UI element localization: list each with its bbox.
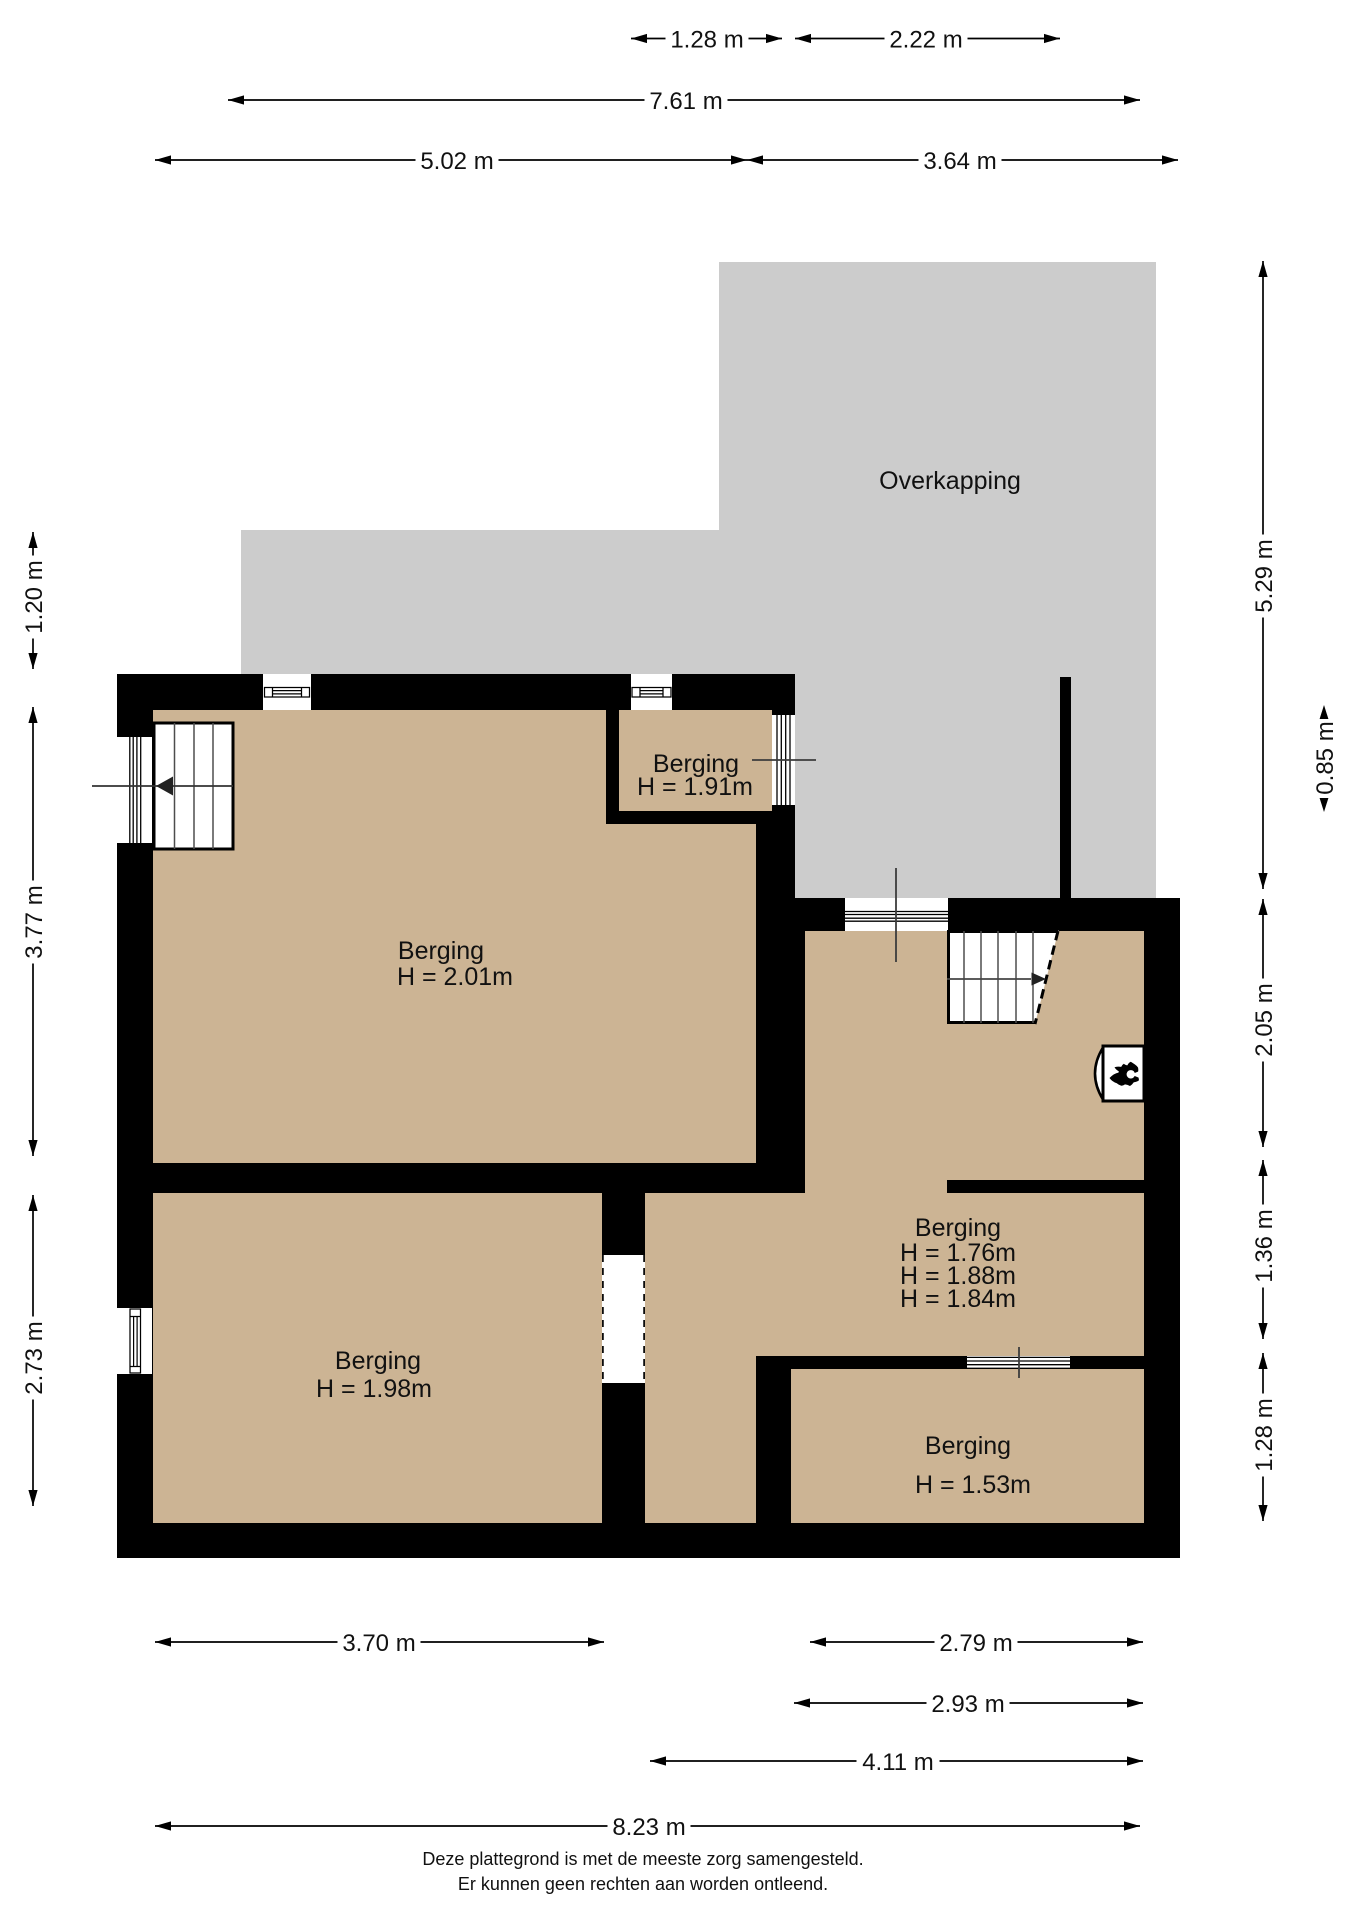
svg-text:3.64 m: 3.64 m [923,148,996,175]
svg-text:1.28 m: 1.28 m [670,27,743,54]
svg-text:2.79 m: 2.79 m [939,1630,1012,1657]
svg-text:7.61 m: 7.61 m [649,88,722,115]
svg-text:2.05 m: 2.05 m [1251,983,1278,1056]
svg-text:Berging: Berging [398,937,484,965]
svg-text:Er kunnen geen rechten aan wor: Er kunnen geen rechten aan worden ontlee… [458,1874,828,1894]
svg-text:H = 2.01m: H = 2.01m [397,963,513,991]
svg-text:0.85 m: 0.85 m [1312,721,1339,794]
svg-text:2.93 m: 2.93 m [931,1691,1004,1718]
svg-text:5.02 m: 5.02 m [420,148,493,175]
svg-text:H = 1.84m: H = 1.84m [900,1285,1016,1313]
svg-text:2.22 m: 2.22 m [889,27,962,54]
svg-text:Deze plattegrond is met de mee: Deze plattegrond is met de meeste zorg s… [422,1849,863,1869]
svg-text:H = 1.53m: H = 1.53m [915,1471,1031,1499]
svg-text:1.36 m: 1.36 m [1251,1209,1278,1282]
svg-text:8.23 m: 8.23 m [612,1814,685,1841]
svg-text:1.28 m: 1.28 m [1251,1398,1278,1471]
svg-text:3.70 m: 3.70 m [342,1630,415,1657]
svg-text:2.73 m: 2.73 m [21,1321,48,1394]
svg-text:1.20 m: 1.20 m [21,560,48,633]
svg-text:Berging: Berging [915,1214,1001,1242]
svg-text:Berging: Berging [925,1432,1011,1460]
svg-text:H = 1.91m: H = 1.91m [637,773,753,801]
svg-text:Berging: Berging [335,1347,421,1375]
svg-text:H = 1.98m: H = 1.98m [316,1375,432,1403]
svg-text:5.29 m: 5.29 m [1251,539,1278,612]
svg-text:3.77 m: 3.77 m [21,885,48,958]
svg-text:4.11 m: 4.11 m [862,1749,934,1776]
svg-text:Overkapping: Overkapping [879,467,1021,495]
